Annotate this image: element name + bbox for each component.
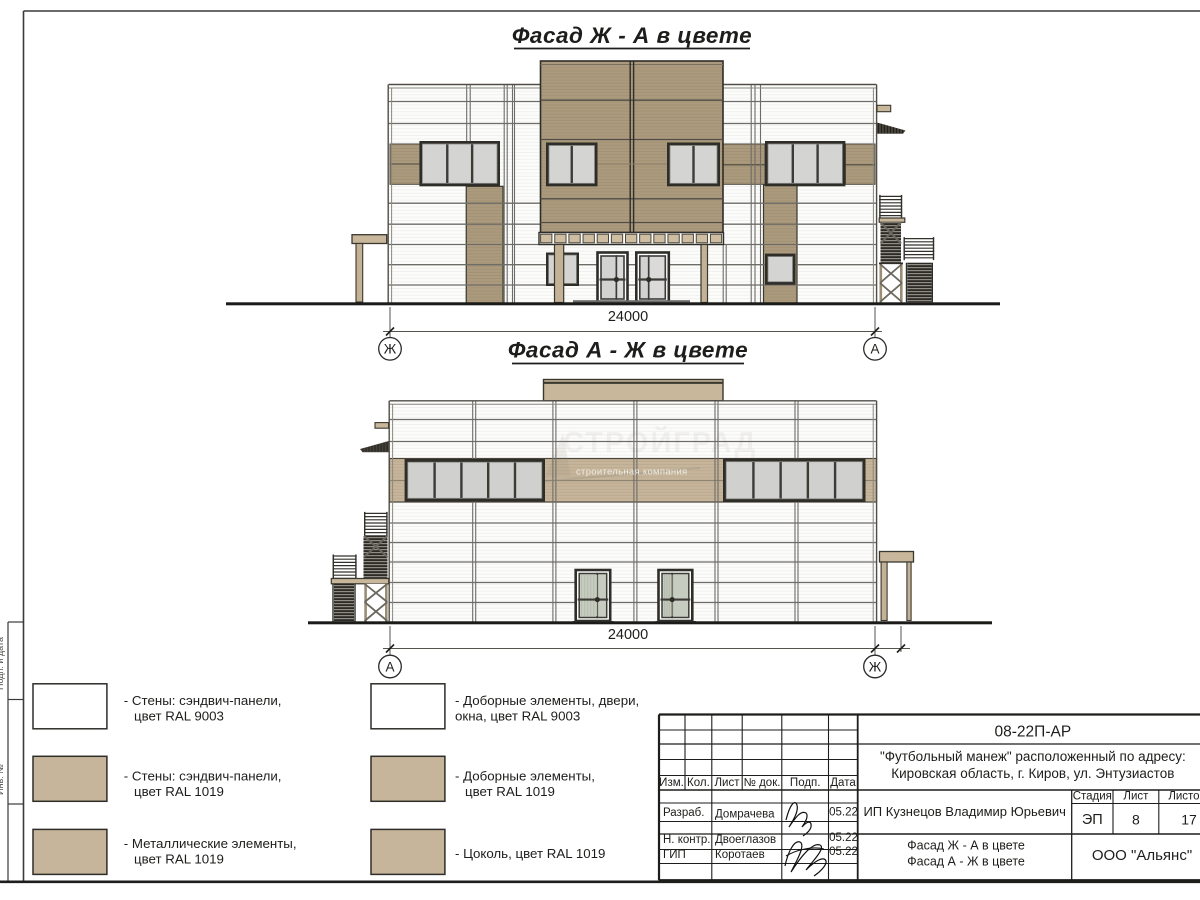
svg-text:24000: 24000 [608,309,648,325]
svg-text:Лист: Лист [1123,791,1149,803]
svg-text:05.22: 05.22 [829,832,858,844]
svg-text:08-22П-АР: 08-22П-АР [995,724,1072,741]
svg-text:№ док.: № док. [744,777,781,789]
svg-text:строительная компания: строительная компания [576,467,688,478]
svg-text:- Металлические элементы,: - Металлические элементы, [124,836,297,851]
svg-text:Ж: Ж [869,659,882,674]
svg-text:цвет RAL 9003: цвет RAL 9003 [134,709,224,724]
svg-text:Коротаев: Коротаев [715,849,765,861]
svg-text:24000: 24000 [608,627,648,643]
svg-text:- Цоколь, цвет RAL 1019: - Цоколь, цвет RAL 1019 [455,846,605,861]
svg-text:Дата: Дата [830,777,856,789]
svg-text:Лист: Лист [715,777,741,789]
svg-text:Ж: Ж [384,342,397,357]
svg-text:А: А [385,659,394,674]
svg-text:Подп. и дата: Подп. и дата [0,637,5,690]
svg-text:Н. контр.: Н. контр. [663,834,710,846]
svg-text:17: 17 [1181,812,1197,828]
svg-text:Фасад А - Ж в цвете: Фасад А - Ж в цвете [907,855,1025,869]
svg-text:ИП Кузнецов Владимир Юрьевич: ИП Кузнецов Владимир Юрьевич [863,804,1065,819]
svg-text:цвет RAL 1019: цвет RAL 1019 [134,784,224,799]
svg-text:Листов: Листов [1168,791,1200,803]
svg-text:- Стены: сэндвич-панели,: - Стены: сэндвич-панели, [124,769,282,784]
svg-text:ГИП: ГИП [663,849,686,861]
svg-text:Кол.: Кол. [687,777,710,789]
svg-text:- Стены: сэндвич-панели,: - Стены: сэндвич-панели, [124,693,282,708]
svg-text:Двоеглазов: Двоеглазов [715,834,776,846]
svg-text:ЭП: ЭП [1082,812,1103,828]
svg-text:Кировская область, г. Киров, у: Кировская область, г. Киров, ул. Энтузиа… [891,766,1174,781]
svg-text:цвет RAL 1019: цвет RAL 1019 [134,852,224,867]
svg-text:Фасад Ж - А в цвете: Фасад Ж - А в цвете [512,23,752,48]
svg-text:Домрачева: Домрачева [715,809,775,821]
svg-text:СТРОЙГРАД: СТРОЙГРАД [563,425,757,459]
svg-text:"Футбольный манеж" расположенн: "Футбольный манеж" расположенный по адре… [880,749,1186,764]
svg-text:05.22: 05.22 [829,807,858,819]
svg-text:Фасад А - Ж в цвете: Фасад А - Ж в цвете [508,338,748,363]
svg-text:- Доборные элементы, двери,: - Доборные элементы, двери, [455,693,639,708]
svg-text:Подп.: Подп. [790,777,821,789]
svg-text:05.22: 05.22 [829,846,858,858]
svg-text:8: 8 [1132,812,1140,828]
svg-text:ООО "Альянс": ООО "Альянс" [1092,847,1192,864]
svg-text:Стадия: Стадия [1073,791,1112,803]
svg-text:Изм.: Изм. [659,777,684,789]
svg-text:- Доборные элементы,: - Доборные элементы, [455,769,595,784]
svg-text:Инв. №: Инв. № [0,764,5,795]
svg-text:Разраб.: Разраб. [663,807,704,819]
svg-text:цвет RAL 1019: цвет RAL 1019 [465,784,555,799]
svg-text:Фасад Ж - А в цвете: Фасад Ж - А в цвете [907,839,1025,853]
svg-text:окна, цвет RAL 9003: окна, цвет RAL 9003 [455,709,580,724]
svg-text:А: А [870,342,879,357]
